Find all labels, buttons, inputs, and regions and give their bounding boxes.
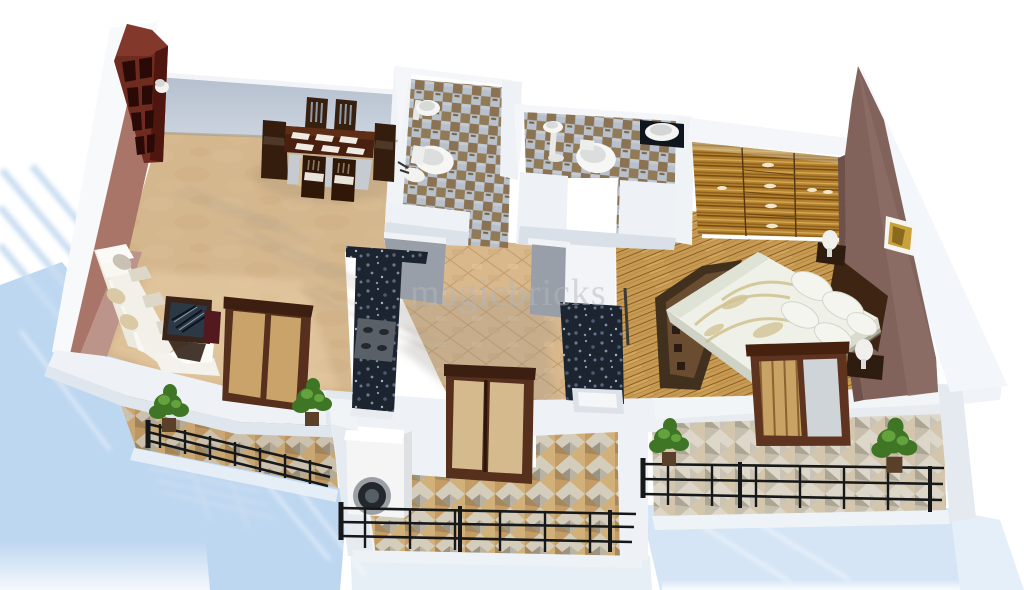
svg-text:magicbricks: magicbricks xyxy=(410,272,607,314)
